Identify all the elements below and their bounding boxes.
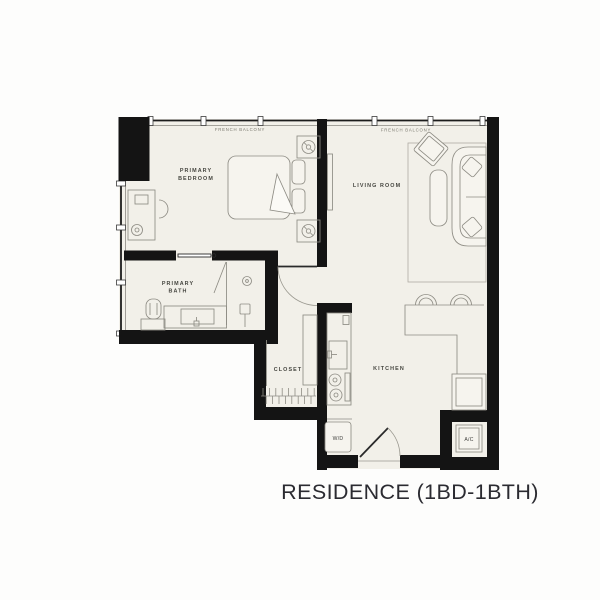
floor-plan: W/D A/C FRENCH BALCONY FRENCH BALCONY PR… xyxy=(0,0,600,600)
washer-dryer-label: W/D xyxy=(333,436,344,442)
floor-plan-page: W/D A/C FRENCH BALCONY FRENCH BALCONY PR… xyxy=(0,0,600,600)
sofa xyxy=(452,147,486,246)
wall-nw-column xyxy=(119,117,150,181)
pillow xyxy=(292,160,305,184)
ac-label: A/C xyxy=(464,437,473,443)
wall-bedroom-living-divider xyxy=(317,119,327,267)
living-room-label: LIVING ROOM xyxy=(353,183,401,189)
washer-dryer-box: W/D xyxy=(325,422,351,452)
wall-east xyxy=(487,117,499,470)
wall-closet-south xyxy=(254,407,327,420)
pillow xyxy=(292,189,305,213)
bath-sliding-door xyxy=(178,254,216,258)
plan-title: RESIDENCE (1BD-1BTH) xyxy=(281,480,539,504)
primary-bath-label-line1: PRIMARY xyxy=(162,281,194,287)
refrigerator xyxy=(452,374,486,410)
coffee-table xyxy=(430,170,447,226)
closet-label: CLOSET xyxy=(274,367,302,373)
french-balcony-right-label: FRENCH BALCONY xyxy=(381,128,431,133)
primary-bedroom-label-line2: BEDROOM xyxy=(178,176,214,182)
primary-bath-label-line2: BATH xyxy=(169,289,188,295)
primary-bedroom-label-line1: PRIMARY xyxy=(180,168,212,174)
wall-closet-west xyxy=(254,330,266,420)
wall-south-east xyxy=(440,457,499,470)
french-balcony-left-label: FRENCH BALCONY xyxy=(215,127,265,132)
wall-entry-left xyxy=(317,455,358,468)
wall-kitchen-stub xyxy=(317,303,352,313)
ac-box: A/C xyxy=(456,425,482,452)
kitchen-label: KITCHEN xyxy=(373,366,405,372)
wall-bath-north-left xyxy=(124,251,176,261)
wall-ac-north xyxy=(440,410,487,422)
wall-bath-east xyxy=(265,251,278,344)
